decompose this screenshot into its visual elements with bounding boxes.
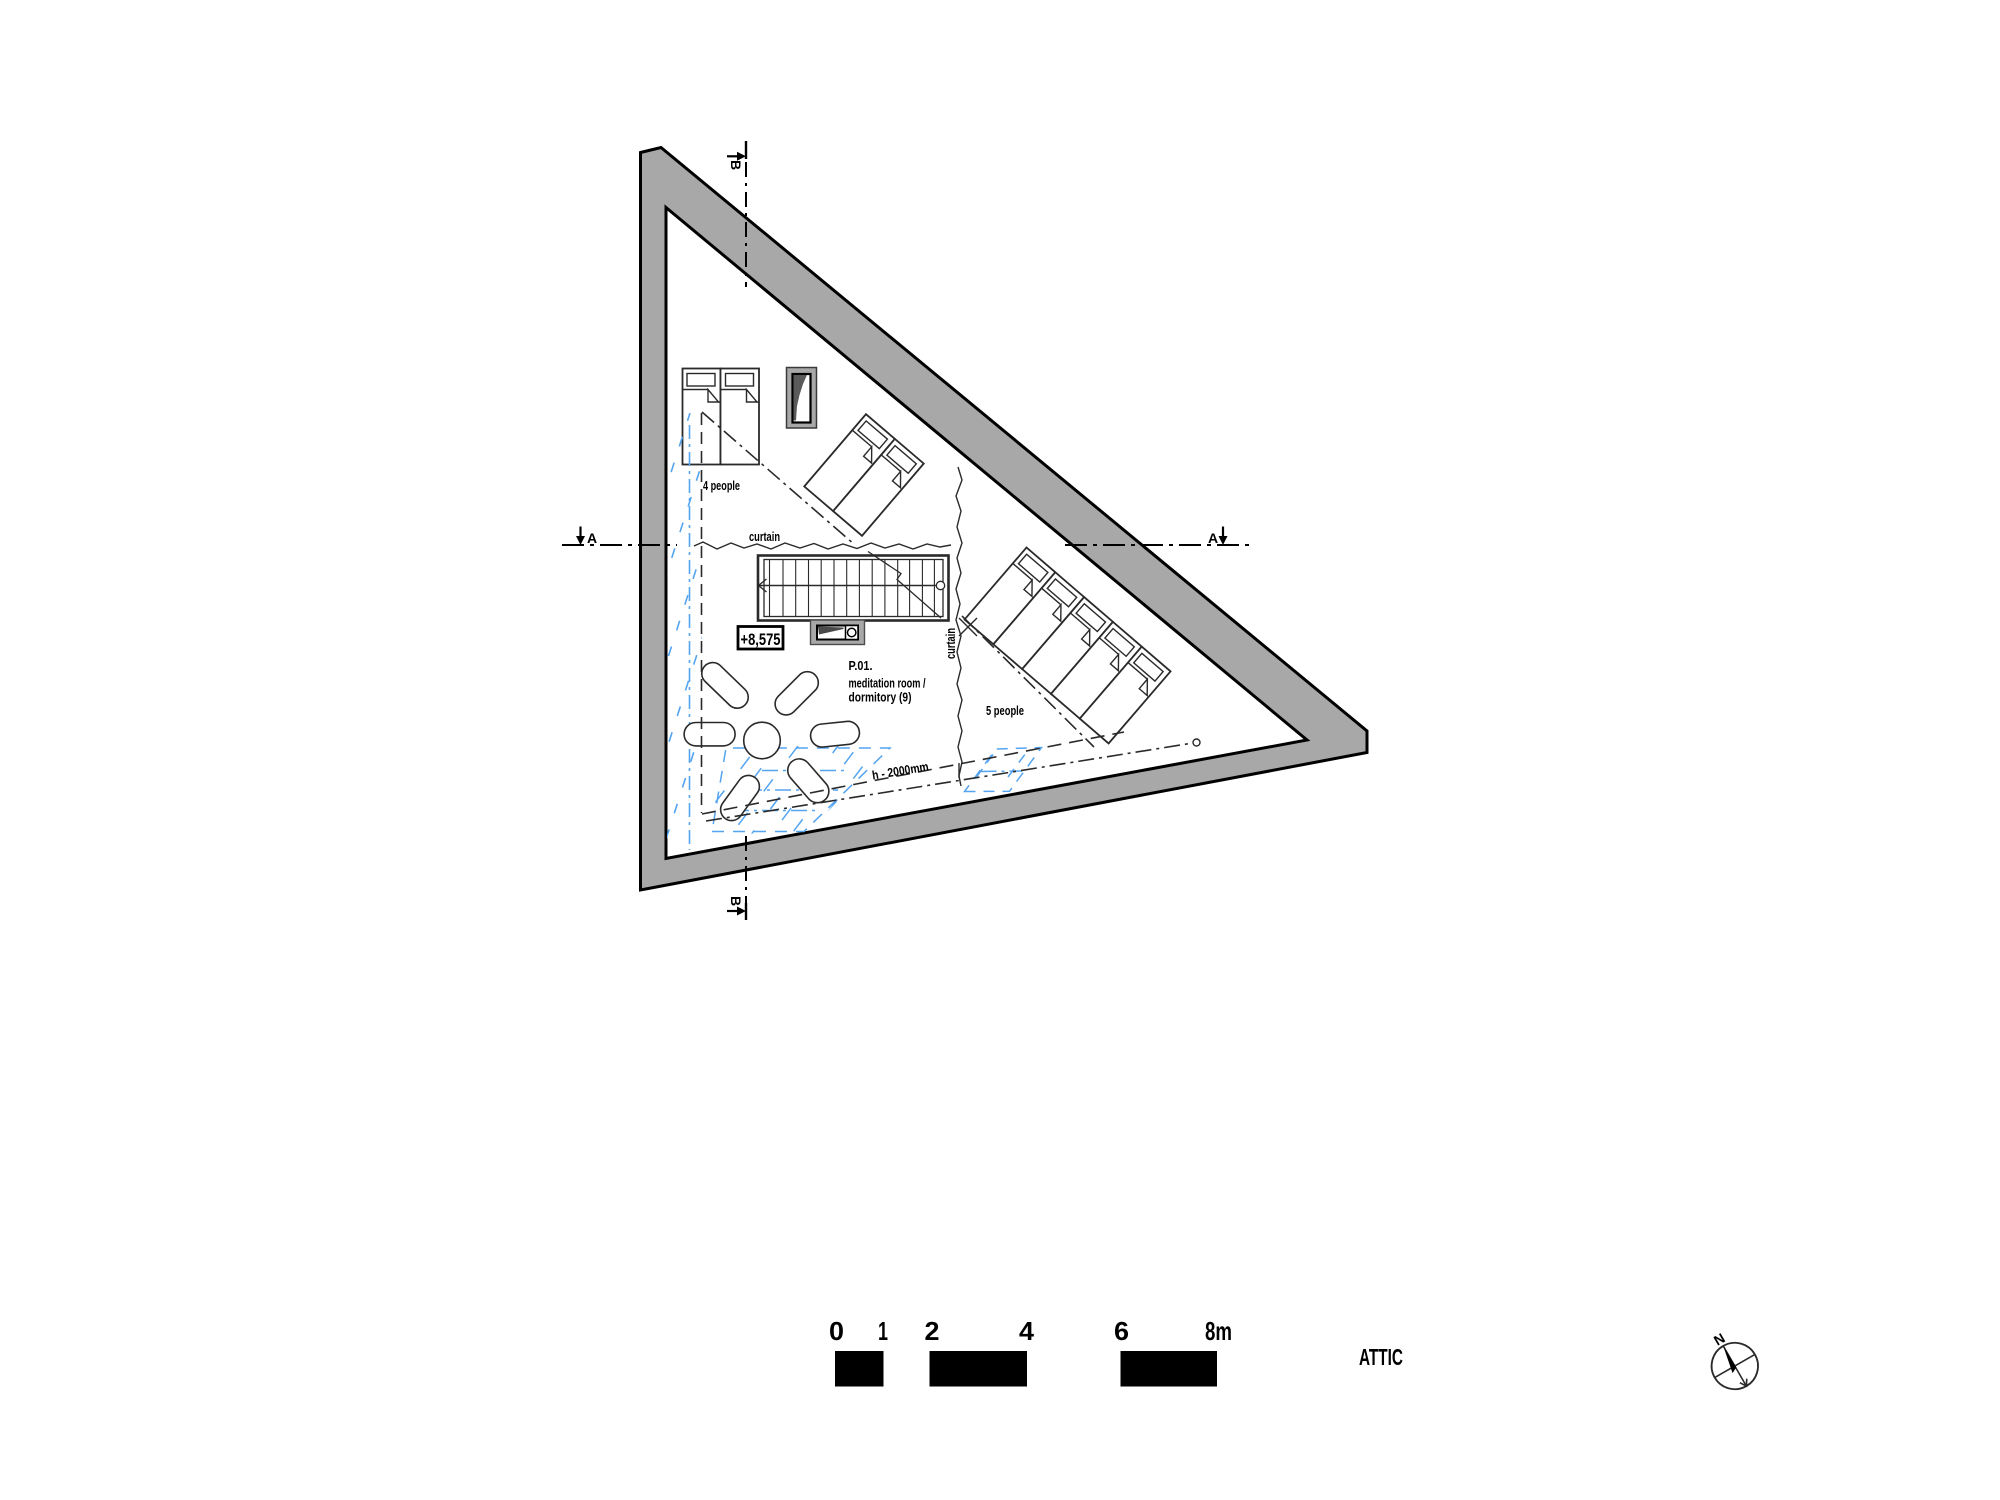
svg-text:B: B (728, 160, 744, 170)
svg-text:1: 1 (878, 1316, 888, 1346)
svg-text:ATTIC: ATTIC (1359, 1344, 1403, 1370)
svg-text:5 people: 5 people (986, 704, 1024, 718)
svg-text:0: 0 (829, 1316, 844, 1346)
svg-text:P.01.: P.01. (849, 659, 873, 673)
svg-text:+8,575: +8,575 (741, 630, 781, 649)
svg-text:curtain: curtain (749, 530, 780, 544)
svg-text:curtain: curtain (944, 628, 958, 659)
svg-text:4: 4 (1019, 1316, 1035, 1346)
svg-text:meditation room /: meditation room / (849, 677, 926, 691)
svg-text:8m: 8m (1205, 1316, 1232, 1346)
svg-text:h - 2000mm: h - 2000mm (871, 760, 930, 783)
svg-text:A: A (587, 530, 597, 546)
svg-text:2: 2 (925, 1316, 940, 1346)
svg-text:6: 6 (1114, 1316, 1129, 1346)
svg-text:4 people: 4 people (703, 479, 740, 493)
svg-text:dormitory (9): dormitory (9) (849, 691, 912, 705)
svg-text:A: A (1208, 530, 1218, 546)
svg-text:B: B (728, 896, 744, 906)
